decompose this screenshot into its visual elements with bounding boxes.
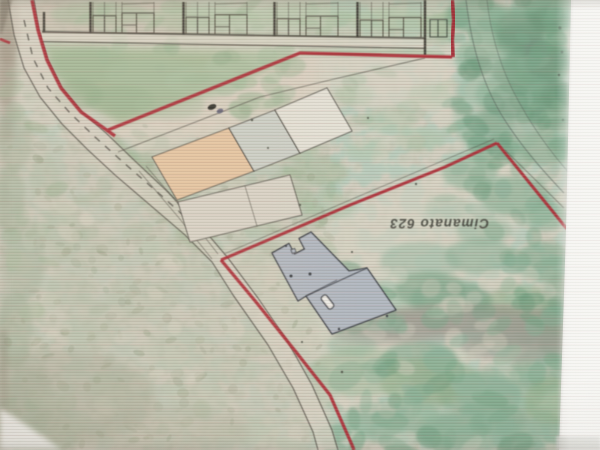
svg-text:Cimanato 623: Cimanato 623 (389, 216, 489, 231)
